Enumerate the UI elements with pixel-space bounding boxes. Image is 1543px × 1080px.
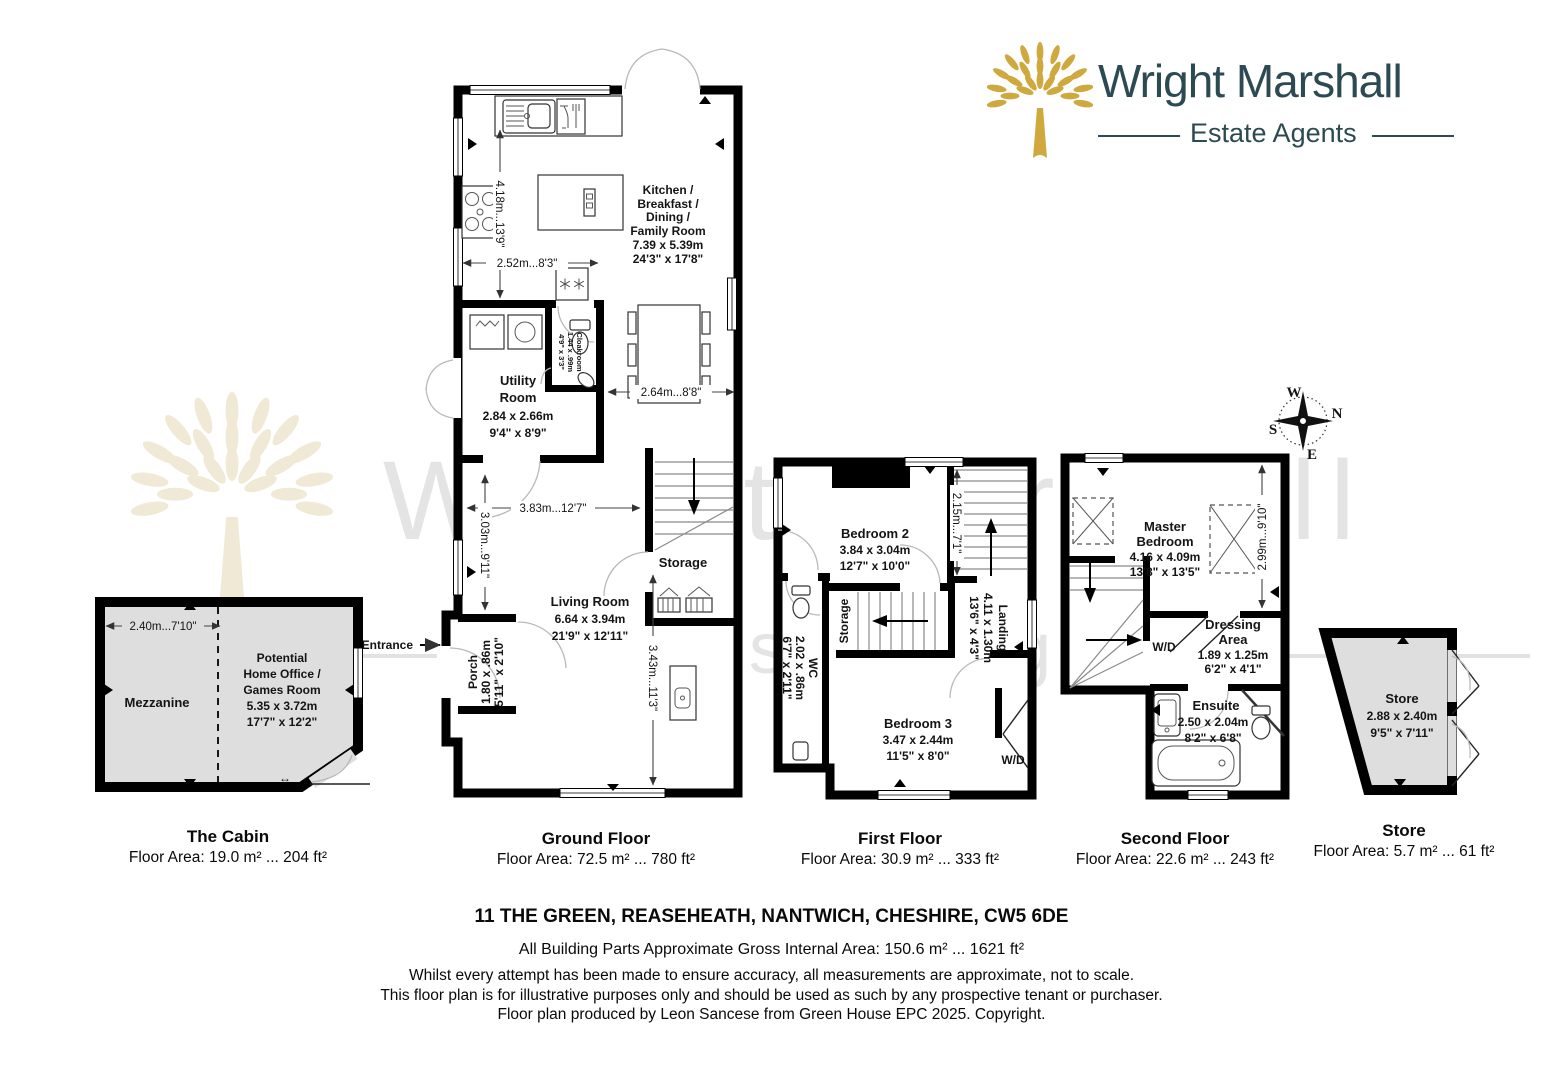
dim-second-room: 2.99m...9'10" — [1255, 495, 1269, 579]
svg-text:Porch: Porch — [466, 655, 480, 689]
svg-text:1.44 x .99m: 1.44 x .99m — [566, 332, 575, 372]
dryer-icon — [508, 315, 542, 349]
caption-ground-title: Ground Floor — [426, 829, 766, 849]
svg-text:Bedroom: Bedroom — [1136, 534, 1193, 549]
svg-text:Home Office /: Home Office / — [243, 667, 321, 681]
svg-text:3.43m...11'3": 3.43m...11'3" — [646, 645, 658, 711]
svg-text:↔: ↔ — [279, 771, 291, 785]
svg-text:4.18m...13'9": 4.18m...13'9" — [493, 180, 505, 247]
caption-ground-area: Floor Area: 72.5 m² ... 780 ft² — [426, 851, 766, 869]
svg-text:Dining /: Dining / — [646, 210, 691, 224]
svg-text:8'2" x 6'8": 8'2" x 6'8" — [1184, 731, 1241, 745]
logo-tagline-text: Estate Agents — [1190, 118, 1357, 149]
svg-text:Games Room: Games Room — [243, 683, 320, 697]
gross-internal-area: All Building Parts Approximate Gross Int… — [0, 941, 1543, 959]
dim-living-width: 3.83m...12'7" — [511, 501, 595, 515]
disclaimer-line-1: Whilst every attempt has been made to en… — [0, 967, 1543, 985]
first-storage-label: Storage — [837, 598, 851, 643]
svg-text:6.64 x 3.94m: 6.64 x 3.94m — [555, 612, 626, 626]
dim-first-stairs: 2.15m...7'1" — [950, 485, 964, 561]
first-wd-label: W/D — [1001, 753, 1025, 767]
cabin-plan: ↔ Mezzanine Potential Home Office / Game… — [100, 602, 370, 787]
second-wd-label: W/D — [1152, 640, 1176, 654]
svg-text:24'3" x 17'8": 24'3" x 17'8" — [633, 252, 703, 266]
entrance-label: Entrance — [362, 638, 414, 652]
svg-text:2.88 x 2.40m: 2.88 x 2.40m — [1367, 709, 1438, 723]
svg-text:7.39 x 5.39m: 7.39 x 5.39m — [633, 238, 704, 252]
dishwasher-icon — [557, 99, 585, 134]
compass-top: W — [1287, 385, 1302, 401]
caption-cabin: The Cabin Floor Area: 19.0 m² ... 204 ft… — [58, 827, 398, 867]
dim-dining-width: 2.64m...8'8" — [630, 385, 712, 399]
store-plan: Store 2.88 x 2.40m 9'5" x 7'11" — [1325, 633, 1479, 790]
cloakroom-label: Cloakroom 1.44 x .99m 4'9" x 3'3" — [557, 332, 584, 372]
svg-text:Family Room: Family Room — [630, 224, 705, 238]
compass-right: N — [1332, 406, 1343, 422]
svg-text:WC: WC — [806, 658, 820, 678]
caption-store-area: Floor Area: 5.7 m² ... 61 ft² — [1234, 843, 1543, 861]
entrance-opening — [437, 646, 451, 698]
caption-store: Store Floor Area: 5.7 m² ... 61 ft² — [1234, 821, 1543, 861]
disclaimer-line-3: Floor plan produced by Leon Sancese from… — [0, 1006, 1543, 1024]
svg-text:2.50 x 2.04m: 2.50 x 2.04m — [1178, 715, 1249, 729]
dim-living-height1: 3.03m...9'11" — [478, 503, 492, 587]
svg-text:2.84 x 2.66m: 2.84 x 2.66m — [483, 409, 554, 423]
living-room-label: Living Room 6.64 x 3.94m 21'9" x 12'11" — [551, 594, 630, 643]
logo-rule-left — [1098, 135, 1180, 137]
svg-text:3.47 x 2.44m: 3.47 x 2.44m — [883, 733, 954, 747]
dim-living-height2: 3.43m...11'3" — [646, 636, 660, 720]
svg-text:2.02 x .86m: 2.02 x .86m — [793, 636, 807, 700]
svg-text:Bedroom 2: Bedroom 2 — [841, 526, 909, 541]
ground-floor-plan: Kitchen / Breakfast / Dining / Family Ro… — [362, 49, 738, 798]
svg-text:9'4" x 8'9": 9'4" x 8'9" — [489, 426, 546, 440]
freezer-icon — [556, 268, 588, 300]
agency-logo: Wright Marshall Estate Agents — [980, 40, 1480, 165]
svg-text:13'8" x 13'5": 13'8" x 13'5" — [1130, 565, 1200, 579]
svg-text:6'7" x 2'11": 6'7" x 2'11" — [780, 636, 794, 699]
logo-brand-text: Wright Marshall — [1098, 54, 1402, 108]
svg-text:Utility: Utility — [500, 373, 537, 388]
second-floor-plan: Master Bedroom 4.16 x 4.09m 13'8" x 13'5… — [1065, 454, 1285, 800]
caption-ground: Ground Floor Floor Area: 72.5 m² ... 780… — [426, 829, 766, 869]
svg-text:2.40m...7'10": 2.40m...7'10" — [129, 621, 196, 633]
svg-text:1.80 x .86m: 1.80 x .86m — [479, 640, 493, 704]
svg-text:4.11 x 1.30m: 4.11 x 1.30m — [981, 593, 995, 663]
compass-left: S — [1269, 422, 1277, 438]
svg-text:Area: Area — [1219, 632, 1249, 647]
svg-text:Bedroom 3: Bedroom 3 — [884, 716, 952, 731]
svg-text:3.84 x 3.04m: 3.84 x 3.04m — [840, 543, 911, 557]
floorplan-page: Wright Marshall Estate Agents — [0, 0, 1543, 1080]
svg-text:12'7" x 10'0": 12'7" x 10'0" — [840, 559, 910, 573]
disclaimer-line-2: This floor plan is for illustrative purp… — [0, 987, 1543, 1005]
svg-text:2.52m...8'3": 2.52m...8'3" — [497, 258, 558, 270]
first-floor-plan: Bedroom 2 3.84 x 3.04m 12'7" x 10'0" Bed… — [774, 458, 1037, 800]
kitchen-island — [538, 175, 623, 230]
compass-rose: W N S E — [1269, 385, 1343, 463]
dim-kitchen-width: 2.52m...8'3" — [486, 256, 568, 270]
caption-cabin-title: The Cabin — [58, 827, 398, 847]
toilet-icon — [1252, 706, 1270, 715]
kitchen-counter — [495, 96, 622, 136]
bedroom2-label: Bedroom 2 3.84 x 3.04m 12'7" x 10'0" — [840, 526, 911, 573]
svg-text:17'7" x 12'2": 17'7" x 12'2" — [247, 715, 317, 729]
svg-text:4.16 x 4.09m: 4.16 x 4.09m — [1130, 550, 1201, 564]
bathtub-icon — [1152, 740, 1240, 786]
dim-kitchen-height: 4.18m...13'9" — [493, 172, 507, 256]
svg-text:11'5" x 8'0": 11'5" x 8'0" — [886, 749, 949, 763]
svg-text:13'6" x 4'3": 13'6" x 4'3" — [967, 596, 981, 660]
svg-text:2.15m...7'1": 2.15m...7'1" — [950, 493, 962, 554]
svg-text:5.35 x 3.72m: 5.35 x 3.72m — [247, 699, 318, 713]
svg-text:21'9" x 12'11": 21'9" x 12'11" — [552, 629, 628, 643]
svg-text:Landing: Landing — [996, 605, 1010, 652]
french-door-opening — [622, 84, 700, 96]
mezzanine-label: Mezzanine — [124, 695, 189, 710]
ground-storage-label: Storage — [659, 555, 707, 570]
svg-text:6'2" x 4'1": 6'2" x 4'1" — [1204, 662, 1261, 676]
bedroom3-label: Bedroom 3 3.47 x 2.44m 11'5" x 8'0" — [883, 716, 954, 763]
compass-bottom: E — [1307, 447, 1317, 463]
svg-text:9'5" x 7'11": 9'5" x 7'11" — [1370, 726, 1433, 740]
svg-text:3.83m...12'7": 3.83m...12'7" — [519, 503, 586, 515]
svg-text:Ensuite: Ensuite — [1193, 698, 1240, 713]
property-address: 11 THE GREEN, REASEHEATH, NANTWICH, CHES… — [0, 906, 1543, 928]
svg-text:Living Room: Living Room — [551, 594, 630, 609]
svg-text:Cloakroom: Cloakroom — [575, 332, 584, 372]
living-fireplace — [670, 666, 696, 720]
dim-cabin-width: 2.40m...7'10" — [122, 619, 204, 633]
svg-text:Potential: Potential — [257, 651, 308, 665]
logo-rule-right — [1372, 135, 1454, 137]
svg-text:Dressing: Dressing — [1205, 617, 1261, 632]
caption-store-title: Store — [1234, 821, 1543, 841]
svg-text:3.03m...9'11": 3.03m...9'11" — [478, 512, 490, 578]
svg-text:4'9" x 3'3": 4'9" x 3'3" — [557, 334, 566, 370]
svg-text:Breakfast /: Breakfast / — [637, 197, 699, 211]
watermark-tree-icon — [130, 392, 334, 612]
svg-text:2.64m...8'8": 2.64m...8'8" — [641, 387, 702, 399]
svg-text:2.99m...9'10": 2.99m...9'10" — [1257, 503, 1269, 570]
caption-cabin-area: Floor Area: 19.0 m² ... 204 ft² — [58, 849, 398, 867]
svg-text:Room: Room — [500, 390, 537, 405]
svg-text:Master: Master — [1144, 519, 1186, 534]
svg-text:5'11" x 2'10": 5'11" x 2'10" — [492, 637, 506, 707]
svg-text:Kitchen /: Kitchen / — [643, 183, 694, 197]
washer-icon — [470, 315, 504, 349]
svg-text:Store: Store — [1385, 691, 1418, 706]
svg-text:1.89 x 1.25m: 1.89 x 1.25m — [1198, 648, 1269, 662]
